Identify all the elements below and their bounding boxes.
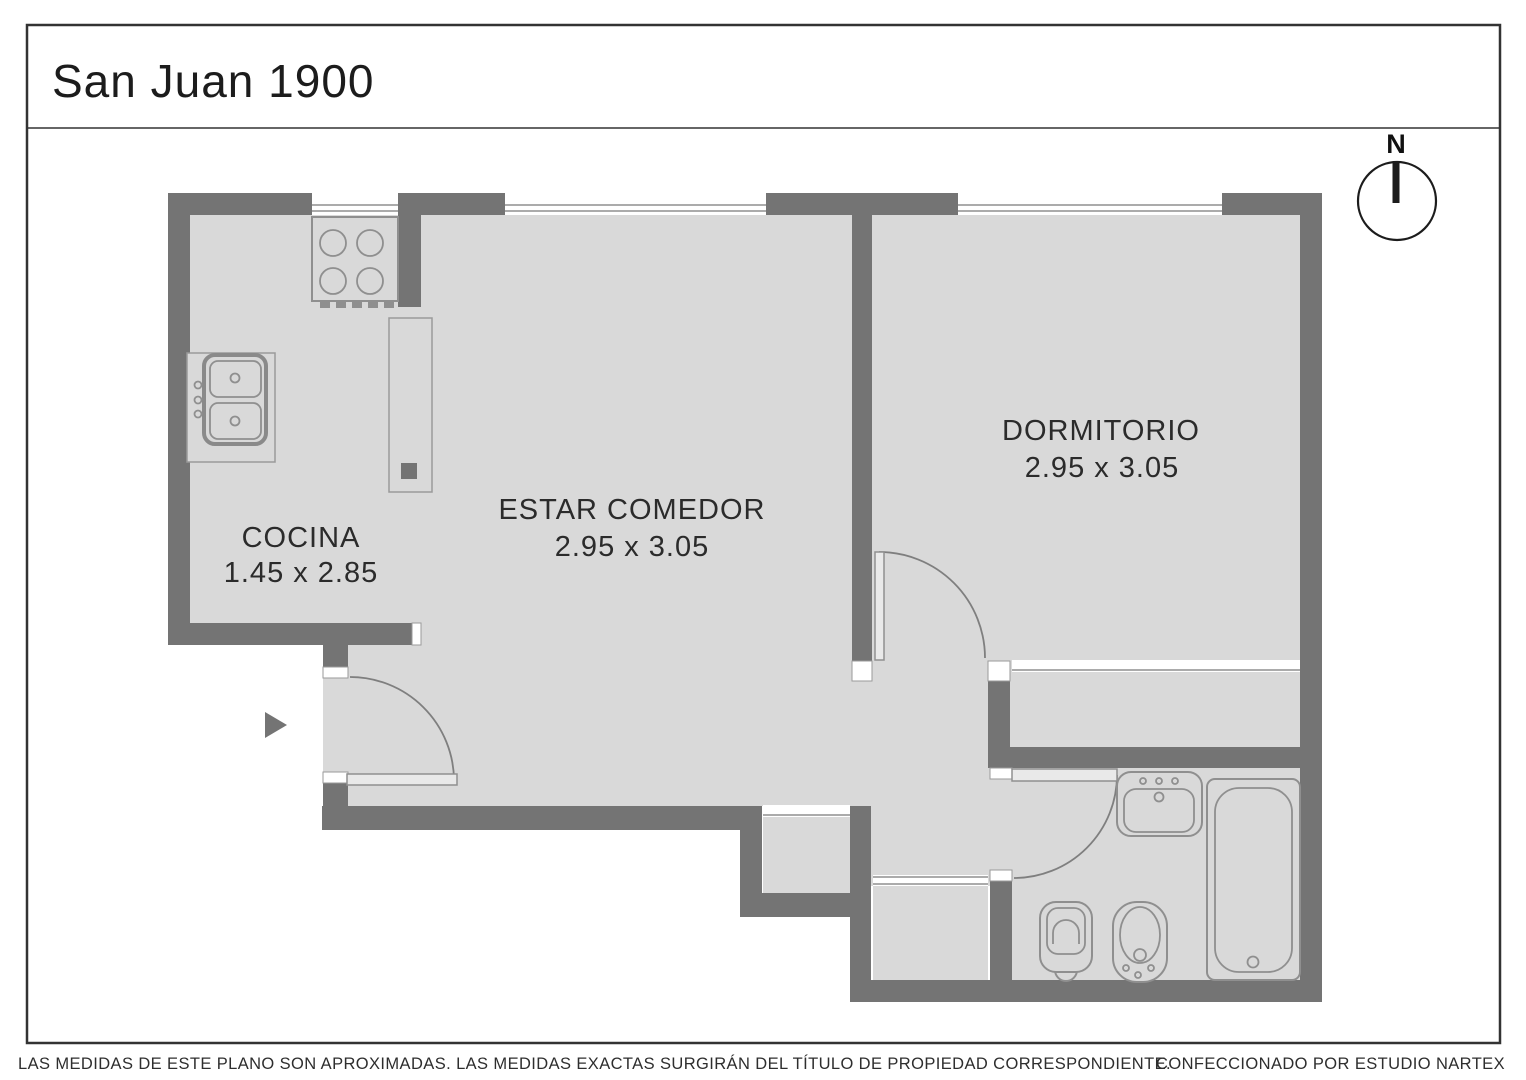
bathtub-icon (1207, 779, 1300, 980)
stove-icon (312, 217, 398, 308)
lower-closet-opening (873, 875, 988, 886)
compass-icon: N (1358, 129, 1436, 240)
bedroom-closet-opening (1012, 660, 1300, 672)
entry-arrow-icon (265, 712, 287, 738)
floor-plan-sheet: San Juan 1900 N (0, 0, 1526, 1080)
room-label-estar-comedor: ESTAR COMEDOR (498, 494, 765, 526)
room-label-cocina: COCINA (242, 522, 361, 554)
bath-sink-icon (1117, 772, 1202, 836)
hall-niche-opening (763, 805, 850, 817)
page-title: San Juan 1900 (52, 55, 375, 107)
floor-plan: COCINA 1.45 x 2.85 ESTAR COMEDOR 2.95 x … (168, 193, 1322, 1002)
toilet-icon (1040, 902, 1092, 981)
kitchen-cabinet-icon (389, 318, 432, 492)
footer-credit: CONFECCIONADO POR ESTUDIO NARTEX (1156, 1055, 1505, 1073)
kitchen-window (312, 193, 398, 215)
living-window (505, 193, 766, 215)
compass-north-label: N (1386, 129, 1406, 159)
kitchen-sink-icon (195, 355, 267, 444)
bidet-icon (1113, 902, 1167, 982)
room-label-dormitorio: DORMITORIO (1002, 415, 1200, 447)
room-dims-cocina: 1.45 x 2.85 (224, 557, 379, 589)
room-dims-dormitorio: 2.95 x 3.05 (1025, 452, 1180, 484)
room-dims-estar-comedor: 2.95 x 3.05 (555, 531, 710, 563)
footer: LAS MEDIDAS DE ESTE PLANO SON APROXIMADA… (18, 1054, 1505, 1073)
bedroom-window (958, 193, 1222, 215)
footer-disclaimer: LAS MEDIDAS DE ESTE PLANO SON APROXIMADA… (18, 1054, 1171, 1073)
